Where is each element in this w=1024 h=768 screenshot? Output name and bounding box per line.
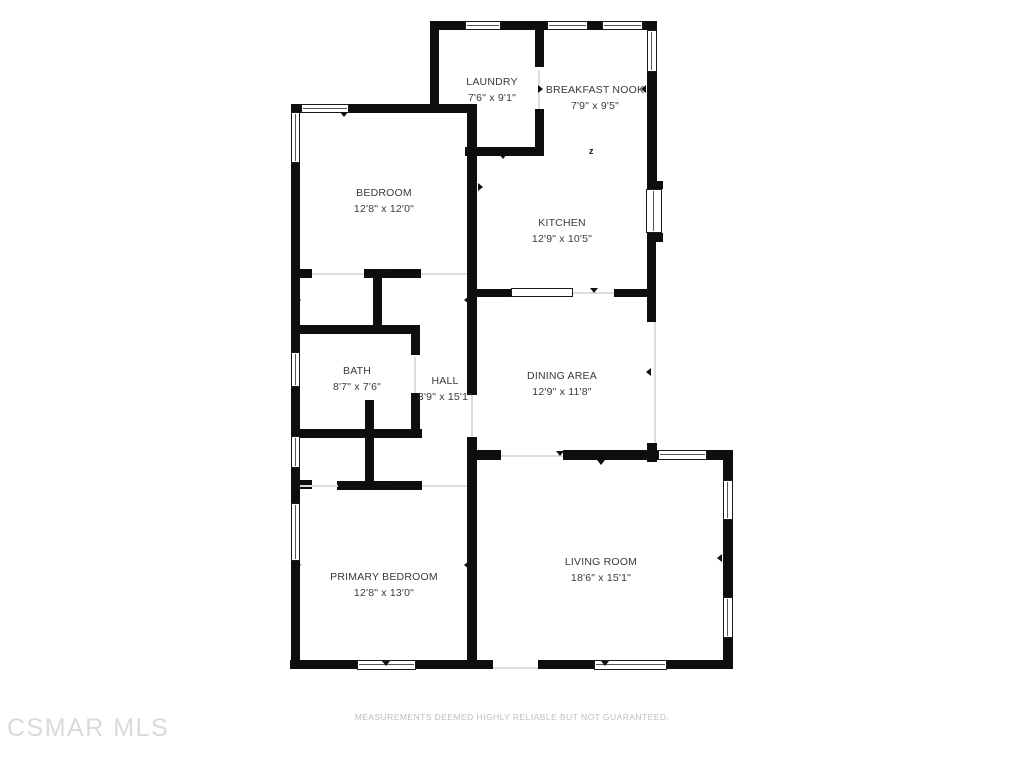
room-name: DINING AREA	[492, 368, 632, 384]
door-tick	[381, 270, 389, 275]
wall	[647, 181, 663, 189]
opening	[501, 455, 563, 457]
wall	[647, 233, 663, 242]
room-name: HALL	[404, 373, 486, 389]
wall	[477, 450, 501, 460]
wall	[411, 325, 420, 355]
wall	[291, 429, 422, 438]
opening	[300, 485, 338, 487]
room-label-primary-bedroom: PRIMARY BEDROOM 12'8" x 13'0"	[294, 569, 474, 601]
mls-watermark: CSMAR MLS	[7, 714, 169, 743]
window	[291, 503, 300, 561]
wall	[723, 460, 733, 480]
window	[646, 189, 662, 233]
wall	[647, 242, 656, 322]
window	[291, 112, 300, 163]
wall	[291, 325, 419, 334]
wall	[373, 269, 382, 329]
dimension-tick	[646, 368, 651, 376]
opening	[654, 322, 656, 443]
room-name: BEDROOM	[314, 185, 454, 201]
dimension-tick	[296, 296, 301, 304]
room-name: BREAKFAST NOOK	[525, 82, 665, 98]
opening	[312, 273, 364, 275]
wall	[467, 104, 477, 395]
room-name: PRIMARY BEDROOM	[294, 569, 474, 585]
window	[647, 30, 657, 72]
wall	[337, 481, 422, 490]
dimension-tick	[464, 561, 469, 569]
wall	[563, 450, 658, 460]
dimension-tick	[296, 561, 301, 569]
room-dimensions: 18'6" x 15'1"	[521, 570, 681, 586]
window	[547, 21, 588, 30]
wall	[349, 104, 430, 113]
wall	[707, 450, 733, 460]
wall	[365, 400, 374, 481]
opening	[421, 273, 467, 275]
room-label-bedroom: BEDROOM 12'8" x 12'0"	[314, 185, 454, 217]
wall	[588, 21, 602, 30]
room-name: LIVING ROOM	[521, 554, 681, 570]
door-tick	[597, 460, 605, 465]
wall	[291, 278, 300, 352]
dimension-tick	[478, 183, 483, 191]
door-tick	[499, 154, 507, 159]
dimension-tick	[464, 296, 469, 304]
wall	[538, 660, 594, 669]
wall	[291, 269, 312, 278]
opening	[422, 485, 467, 487]
room-dimensions: 12'8" x 13'0"	[294, 585, 474, 601]
window	[291, 352, 300, 387]
room-dimensions: 8'7" x 7'6"	[307, 379, 407, 395]
north-marker-symbol: z	[589, 146, 594, 156]
room-name: BATH	[307, 363, 407, 379]
room-dimensions: 12'9" x 11'8"	[492, 384, 632, 400]
room-label-kitchen: KITCHEN 12'9" x 10'5"	[492, 215, 632, 247]
floor-plan: z LAUNDRY 7'6" x 9'1" BREAKFAST NOOK 7'9…	[0, 0, 1024, 768]
room-label-breakfast-nook: BREAKFAST NOOK 7'9" x 9'5"	[525, 82, 665, 114]
wall	[535, 21, 544, 67]
window	[658, 450, 707, 460]
wall	[290, 660, 357, 669]
window	[291, 436, 300, 468]
window	[723, 597, 733, 638]
room-dimensions: 12'9" x 10'5"	[492, 231, 632, 247]
door-tick	[590, 288, 598, 293]
room-label-dining-area: DINING AREA 12'9" x 11'8"	[492, 368, 632, 400]
wall	[667, 660, 733, 669]
opening	[493, 667, 538, 669]
wall	[723, 520, 733, 597]
room-label-hall: HALL 3'9" x 15'1"	[404, 373, 486, 405]
door-tick	[340, 112, 348, 117]
room-dimensions: 12'8" x 12'0"	[314, 201, 454, 217]
window	[465, 21, 501, 30]
wall	[467, 437, 477, 669]
window	[602, 21, 643, 30]
wall	[477, 289, 511, 297]
window	[723, 480, 733, 520]
wall	[416, 660, 493, 669]
room-name: KITCHEN	[492, 215, 632, 231]
dimension-tick	[717, 554, 722, 562]
room-label-living-room: LIVING ROOM 18'6" x 15'1"	[521, 554, 681, 586]
door-tick	[382, 661, 390, 666]
room-dimensions: 7'9" x 9'5"	[525, 98, 665, 114]
wall	[614, 289, 648, 297]
door-tick	[556, 451, 564, 456]
room-label-bath: BATH 8'7" x 7'6"	[307, 363, 407, 395]
kitchen-counter	[511, 288, 573, 297]
room-dimensions: 3'9" x 15'1"	[404, 389, 486, 405]
door-tick	[601, 661, 609, 666]
door-tick	[381, 483, 389, 488]
wall	[291, 163, 300, 269]
